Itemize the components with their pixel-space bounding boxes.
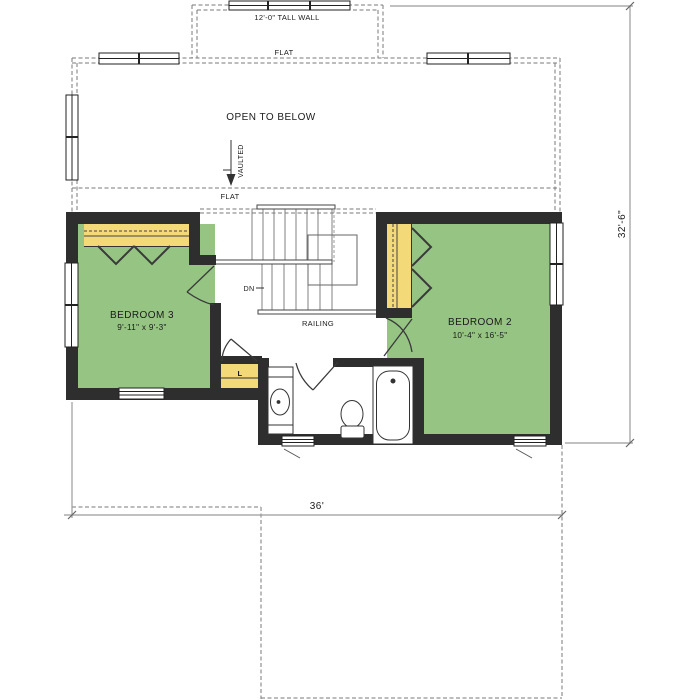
open-to-below-label: OPEN TO BELOW xyxy=(226,112,316,123)
window-top-left xyxy=(99,53,179,64)
window-bedroom2-bottom xyxy=(514,436,546,458)
bedroom2-name: BEDROOM 2 xyxy=(448,317,512,328)
window-bedroom3-left xyxy=(65,263,78,347)
floor-plan-canvas: 12'-0" TALL WALL FLAT OPEN TO BELOW VAUL… xyxy=(0,0,700,700)
door-bathroom xyxy=(296,362,338,390)
window-bedroom3-bottom xyxy=(119,388,164,399)
bath-fixtures xyxy=(268,366,413,444)
toilet xyxy=(341,401,364,439)
bedroom3-size: 9'-11" x 9'-3" xyxy=(117,323,166,332)
bathtub xyxy=(373,366,413,444)
flat-upper-label: FLAT xyxy=(275,48,294,57)
window-top-right xyxy=(427,53,510,64)
vaulted-arrow xyxy=(223,140,236,186)
vaulted-label: VAULTED xyxy=(238,144,245,177)
bedroom3-name: BEDROOM 3 xyxy=(110,310,174,321)
window-bedroom2-right xyxy=(550,223,563,305)
overall-depth-dimension: 32'-6" xyxy=(617,210,628,238)
linen-label: L xyxy=(238,369,243,378)
floor-plan-drawing: 12'-0" TALL WALL FLAT OPEN TO BELOW VAUL… xyxy=(0,0,700,700)
down-label: DN xyxy=(244,284,255,293)
window-bath-bottom xyxy=(282,436,314,458)
bedroom2-size: 10'-4" x 16'-5" xyxy=(453,331,508,340)
window-bumpout-top xyxy=(229,1,350,10)
tall-wall-label: 12'-0" TALL WALL xyxy=(254,13,319,22)
flat-lower-label: FLAT xyxy=(221,192,240,201)
vanity-sink xyxy=(268,367,293,434)
railing-label: RAILING xyxy=(302,319,334,328)
staircase xyxy=(215,205,377,314)
window-left-upper xyxy=(66,95,78,180)
overall-width-dimension: 36' xyxy=(310,501,324,512)
